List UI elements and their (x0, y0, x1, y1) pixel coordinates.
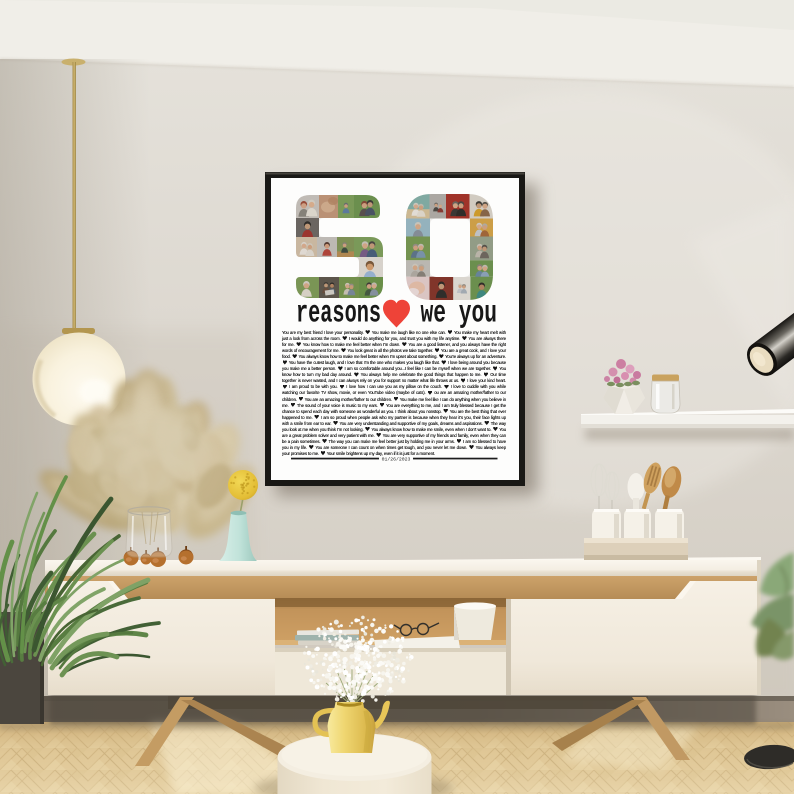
svg-text:01/26/2023: 01/26/2023 (382, 456, 411, 462)
svg-text:reasons: reasons (296, 297, 381, 332)
svg-text:we you: we you (421, 297, 498, 332)
